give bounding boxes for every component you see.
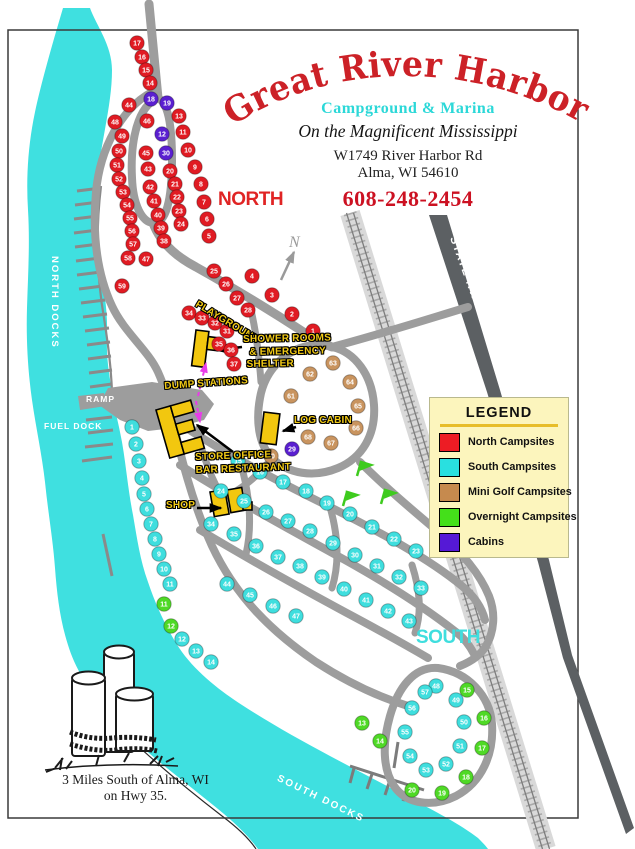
campsite-north: 39: [154, 221, 168, 235]
north-docks-label: NORTH DOCKS: [49, 256, 60, 349]
location-note-line1: 3 Miles South of Alma, WI: [18, 772, 253, 788]
svg-text:65: 65: [354, 404, 362, 411]
svg-text:22: 22: [390, 537, 398, 544]
campsite-south: 10: [157, 562, 171, 576]
svg-text:16: 16: [480, 716, 488, 723]
svg-text:30: 30: [162, 151, 170, 158]
campsite-south: 43: [402, 614, 416, 628]
svg-text:49: 49: [118, 134, 126, 141]
campsite-overnight: 12: [164, 619, 178, 633]
svg-text:19: 19: [323, 501, 331, 508]
campsite-south: 13: [189, 644, 203, 658]
svg-text:44: 44: [125, 103, 133, 110]
svg-text:45: 45: [142, 151, 150, 158]
log-cabin-building: [260, 412, 280, 445]
svg-text:24: 24: [217, 489, 225, 496]
campsite-south: 53: [419, 763, 433, 777]
svg-text:29: 29: [329, 541, 337, 548]
svg-text:6: 6: [145, 507, 149, 514]
svg-text:36: 36: [252, 544, 260, 551]
svg-text:15: 15: [463, 688, 471, 695]
svg-text:26: 26: [222, 282, 230, 289]
svg-text:56: 56: [128, 229, 136, 236]
svg-text:38: 38: [160, 239, 168, 246]
campsite-north: 47: [139, 252, 153, 266]
campsite-south: 54: [403, 749, 417, 763]
svg-text:18: 18: [462, 775, 470, 782]
svg-text:13: 13: [175, 114, 183, 121]
svg-text:21: 21: [368, 525, 376, 532]
svg-text:68: 68: [304, 435, 312, 442]
svg-text:34: 34: [185, 311, 193, 318]
campsite-north: 40: [151, 208, 165, 222]
campsite-north: 2: [285, 307, 299, 321]
campsite-south: 6: [140, 502, 154, 516]
campsite-south: 18: [299, 484, 313, 498]
svg-text:17: 17: [279, 480, 287, 487]
legend-items: North CampsitesSouth CampsitesMini Golf …: [430, 433, 568, 552]
svg-text:28: 28: [306, 529, 314, 536]
page-title: Great River Harbor: [216, 44, 596, 133]
svg-text:18: 18: [147, 97, 155, 104]
svg-text:19: 19: [163, 101, 171, 108]
campsite-south: 14: [204, 655, 218, 669]
campsite-south: 39: [315, 570, 329, 584]
campsite-south: 25: [237, 494, 251, 508]
svg-text:28: 28: [244, 308, 252, 315]
campsite-north: 20: [163, 164, 177, 178]
campsite-south: 56: [405, 701, 419, 715]
svg-text:53: 53: [119, 190, 127, 197]
shower-line-3: SHELTER: [246, 357, 331, 371]
phone-number: 608-248-2454: [248, 186, 568, 212]
campsite-north: 8: [194, 177, 208, 191]
svg-text:45: 45: [246, 593, 254, 600]
campsite-south: 45: [243, 588, 257, 602]
campsite-south: 55: [398, 725, 412, 739]
campsite-overnight: 13: [355, 716, 369, 730]
campsite-north: 45: [139, 146, 153, 160]
svg-text:7: 7: [202, 200, 206, 207]
campsite-south: 5: [137, 487, 151, 501]
compass: N: [281, 234, 301, 280]
svg-text:25: 25: [240, 499, 248, 506]
store-label: STORE OFFICE BAR RESTAURANT: [195, 449, 291, 477]
svg-text:17: 17: [133, 41, 141, 48]
svg-text:7: 7: [149, 522, 153, 529]
svg-text:66: 66: [352, 426, 360, 433]
location-note-line2: on Hwy 35.: [18, 788, 253, 804]
campsite-overnight: 19: [435, 786, 449, 800]
campsite-north: 23: [172, 204, 186, 218]
fuel-dock-label: FUEL DOCK: [44, 421, 102, 431]
campsite-south: 42: [381, 604, 395, 618]
legend-swatch: [439, 458, 460, 477]
svg-text:43: 43: [405, 619, 413, 626]
svg-text:18: 18: [302, 489, 310, 496]
campsite-cabin: 30: [159, 146, 173, 160]
svg-text:47: 47: [292, 614, 300, 621]
legend: LEGEND North CampsitesSouth CampsitesMin…: [429, 397, 569, 558]
svg-text:37: 37: [274, 555, 282, 562]
campsite-south: 11: [163, 577, 177, 591]
svg-text:12: 12: [158, 132, 166, 139]
svg-text:2: 2: [134, 442, 138, 449]
campsite-north: 53: [116, 185, 130, 199]
campsite-north: 21: [168, 177, 182, 191]
legend-item: Overnight Campsites: [439, 508, 568, 527]
svg-text:13: 13: [192, 649, 200, 656]
svg-text:8: 8: [199, 182, 203, 189]
svg-text:34: 34: [207, 522, 215, 529]
svg-text:35: 35: [230, 532, 238, 539]
svg-text:27: 27: [233, 296, 241, 303]
campsite-south: 23: [409, 544, 423, 558]
campsite-north: 11: [176, 125, 190, 139]
campsite-north: 54: [120, 198, 134, 212]
svg-text:23: 23: [412, 549, 420, 556]
campsite-north: 36: [224, 343, 238, 357]
svg-text:5: 5: [207, 234, 211, 241]
campsite-south: 37: [271, 550, 285, 564]
address-line2: Alma, WI 54610: [248, 165, 568, 182]
svg-text:26: 26: [262, 510, 270, 517]
legend-label: South Campsites: [468, 461, 556, 473]
campsite-south: 57: [418, 685, 432, 699]
svg-text:20: 20: [346, 512, 354, 519]
svg-text:48: 48: [432, 684, 440, 691]
subtitle: Campground & Marina: [248, 100, 568, 118]
campsite-north: 15: [139, 63, 153, 77]
legend-swatch: [439, 433, 460, 452]
campsite-north: 56: [125, 224, 139, 238]
svg-text:47: 47: [142, 257, 150, 264]
legend-item: Cabins: [439, 533, 568, 552]
campsite-south: 31: [370, 559, 384, 573]
svg-text:23: 23: [175, 209, 183, 216]
campsite-north: 13: [172, 109, 186, 123]
campsite-south: 27: [281, 514, 295, 528]
svg-text:64: 64: [346, 380, 354, 387]
svg-text:3: 3: [270, 293, 274, 300]
svg-text:17: 17: [478, 746, 486, 753]
campsite-north: 14: [143, 76, 157, 90]
campsite-north: 3: [265, 288, 279, 302]
campsite-north: 58: [121, 251, 135, 265]
campsite-north: 52: [112, 172, 126, 186]
svg-text:36: 36: [227, 348, 235, 355]
svg-text:50: 50: [460, 720, 468, 727]
ramp-label: RAMP: [86, 394, 115, 404]
svg-text:14: 14: [207, 660, 215, 667]
svg-text:19: 19: [438, 791, 446, 798]
campsite-south: 50: [457, 715, 471, 729]
campsite-overnight: 11: [157, 597, 171, 611]
campsite-south: 47: [289, 609, 303, 623]
campsite-south: 35: [227, 527, 241, 541]
campsite-minigolf: 67: [324, 436, 338, 450]
svg-text:41: 41: [150, 199, 158, 206]
campsite-north: 27: [230, 291, 244, 305]
campsite-north: 42: [143, 180, 157, 194]
campsite-south: 12: [175, 632, 189, 646]
legend-title: LEGEND: [430, 398, 568, 421]
svg-text:58: 58: [124, 256, 132, 263]
campsite-north: 59: [115, 279, 129, 293]
svg-text:12: 12: [167, 624, 175, 631]
campsite-south: 1: [125, 420, 139, 434]
campsite-south: 21: [365, 520, 379, 534]
campsite-north: 9: [188, 160, 202, 174]
campsite-north: 26: [219, 277, 233, 291]
log-cabin-arrow: [283, 427, 296, 431]
svg-text:51: 51: [113, 163, 121, 170]
svg-text:43: 43: [144, 167, 152, 174]
svg-text:2: 2: [290, 312, 294, 319]
campsite-north: 50: [112, 144, 126, 158]
tagline: On the Magnificent Mississippi: [238, 121, 578, 142]
campsite-north: 51: [110, 158, 124, 172]
campsite-south: 49: [449, 693, 463, 707]
shower-rooms-label: SHOWER ROOMS & EMERGENCY SHELTER: [243, 332, 332, 371]
campsite-north: 25: [207, 264, 221, 278]
svg-text:53: 53: [422, 768, 430, 775]
legend-label: Mini Golf Campsites: [468, 486, 572, 498]
svg-text:54: 54: [406, 754, 414, 761]
svg-text:25: 25: [210, 269, 218, 276]
campsite-south: 9: [152, 547, 166, 561]
campsite-south: 34: [204, 517, 218, 531]
legend-label: Cabins: [468, 536, 504, 548]
campsite-north: 28: [241, 303, 255, 317]
svg-text:33: 33: [417, 586, 425, 593]
campsite-north: 38: [157, 234, 171, 248]
svg-text:22: 22: [173, 195, 181, 202]
legend-item: Mini Golf Campsites: [439, 483, 568, 502]
legend-swatch: [439, 508, 460, 527]
campsite-south: 41: [359, 593, 373, 607]
shower-line-1: SHOWER ROOMS: [243, 332, 331, 346]
svg-text:55: 55: [401, 730, 409, 737]
campsite-north: 57: [126, 237, 140, 251]
log-cabin-label: LOG CABIN: [294, 415, 352, 428]
campsite-south: 3: [132, 454, 146, 468]
campsite-north: 41: [147, 194, 161, 208]
svg-text:62: 62: [306, 372, 314, 379]
campsite-north: 10: [181, 143, 195, 157]
svg-text:48: 48: [111, 120, 119, 127]
svg-text:1: 1: [130, 425, 134, 432]
svg-text:20: 20: [408, 788, 416, 795]
campsite-north: 37: [227, 357, 241, 371]
legend-rule: [440, 424, 558, 427]
location-note: 3 Miles South of Alma, WI on Hwy 35.: [18, 772, 253, 804]
campsite-south: 26: [259, 505, 273, 519]
svg-text:6: 6: [205, 217, 209, 224]
svg-text:42: 42: [384, 609, 392, 616]
svg-text:46: 46: [269, 604, 277, 611]
campsite-north: 46: [140, 114, 154, 128]
compass-n-label: N: [288, 234, 301, 251]
svg-text:4: 4: [140, 476, 144, 483]
campsite-south: 8: [148, 532, 162, 546]
svg-text:3: 3: [137, 459, 141, 466]
svg-text:10: 10: [184, 148, 192, 155]
campsite-minigolf: 64: [343, 375, 357, 389]
campsite-cabin: 18: [144, 92, 158, 106]
svg-text:20: 20: [166, 169, 174, 176]
campsite-south: 40: [337, 582, 351, 596]
svg-text:52: 52: [442, 762, 450, 769]
legend-label: Overnight Campsites: [468, 511, 577, 523]
campsite-north: 6: [200, 212, 214, 226]
svg-text:38: 38: [296, 564, 304, 571]
svg-text:32: 32: [395, 575, 403, 582]
campsite-south: 20: [343, 507, 357, 521]
campsite-overnight: 18: [459, 770, 473, 784]
campsite-overnight: 16: [477, 711, 491, 725]
svg-text:40: 40: [154, 213, 162, 220]
campsite-minigolf: 68: [301, 430, 315, 444]
svg-text:14: 14: [376, 739, 384, 746]
svg-text:52: 52: [115, 177, 123, 184]
svg-text:5: 5: [142, 492, 146, 499]
campground-map-page: STATE HWY 35 N: [0, 0, 635, 849]
campsite-overnight: 17: [475, 741, 489, 755]
campsite-south: 4: [135, 471, 149, 485]
svg-text:54: 54: [123, 203, 131, 210]
campsite-cabin: 19: [160, 96, 174, 110]
campsite-cabin: 12: [155, 127, 169, 141]
campsite-north: 7: [197, 195, 211, 209]
campsite-south: 30: [348, 548, 362, 562]
campsite-north: 44: [122, 98, 136, 112]
legend-swatch: [439, 533, 460, 552]
svg-text:40: 40: [340, 587, 348, 594]
campsite-south: 2: [129, 437, 143, 451]
campsite-north: 5: [202, 229, 216, 243]
svg-text:51: 51: [456, 744, 464, 751]
svg-text:9: 9: [157, 552, 161, 559]
svg-text:61: 61: [287, 394, 295, 401]
svg-text:11: 11: [160, 602, 168, 609]
campsite-north: 49: [115, 129, 129, 143]
svg-text:16: 16: [138, 55, 146, 62]
campsite-south: 22: [387, 532, 401, 546]
campsite-north: 4: [245, 269, 259, 283]
campsite-south: 51: [453, 739, 467, 753]
svg-text:57: 57: [129, 242, 137, 249]
shower-line-2: & EMERGENCY: [249, 345, 331, 359]
campsite-north: 43: [141, 162, 155, 176]
svg-text:35: 35: [215, 342, 223, 349]
campsite-north: 17: [130, 36, 144, 50]
svg-text:11: 11: [179, 130, 187, 137]
legend-item: North Campsites: [439, 433, 568, 452]
campsite-south: 33: [414, 581, 428, 595]
campsite-south: 36: [249, 539, 263, 553]
campsite-south: 17: [276, 475, 290, 489]
legend-item: South Campsites: [439, 458, 568, 477]
address-line1: W1749 River Harbor Rd: [248, 148, 568, 165]
svg-text:11: 11: [166, 582, 174, 589]
svg-text:41: 41: [362, 598, 370, 605]
campsite-north: 24: [174, 217, 188, 231]
campsite-overnight: 15: [460, 683, 474, 697]
campsite-south: 29: [326, 536, 340, 550]
svg-text:9: 9: [193, 165, 197, 172]
campsite-north: 55: [123, 211, 137, 225]
campsite-south: 28: [303, 524, 317, 538]
svg-text:57: 57: [421, 690, 429, 697]
campsite-south: 46: [266, 599, 280, 613]
campsite-south: 19: [320, 496, 334, 510]
svg-text:24: 24: [177, 222, 185, 229]
legend-swatch: [439, 483, 460, 502]
campsite-south: 32: [392, 570, 406, 584]
svg-text:4: 4: [250, 274, 254, 281]
svg-text:59: 59: [118, 284, 126, 291]
svg-text:42: 42: [146, 185, 154, 192]
svg-text:55: 55: [126, 216, 134, 223]
campsite-minigolf: 65: [351, 399, 365, 413]
campsite-south: 38: [293, 559, 307, 573]
campsite-north: 22: [170, 190, 184, 204]
svg-text:12: 12: [178, 637, 186, 644]
svg-text:31: 31: [373, 564, 381, 571]
svg-text:13: 13: [358, 721, 366, 728]
campsite-south: 44: [220, 577, 234, 591]
svg-text:46: 46: [143, 119, 151, 126]
campsite-south: 24: [214, 484, 228, 498]
campsite-south: 7: [144, 517, 158, 531]
svg-text:56: 56: [408, 706, 416, 713]
svg-text:50: 50: [115, 149, 123, 156]
svg-text:30: 30: [351, 553, 359, 560]
svg-text:27: 27: [284, 519, 292, 526]
svg-text:14: 14: [146, 81, 154, 88]
svg-text:15: 15: [142, 68, 150, 75]
svg-text:39: 39: [318, 575, 326, 582]
svg-text:8: 8: [153, 537, 157, 544]
campsite-overnight: 14: [373, 734, 387, 748]
legend-label: North Campsites: [468, 436, 554, 448]
north-section-label: NORTH: [218, 189, 283, 211]
svg-text:67: 67: [327, 441, 335, 448]
svg-text:21: 21: [171, 182, 179, 189]
svg-text:39: 39: [157, 226, 165, 233]
shop-label: SHOP: [166, 500, 195, 513]
svg-text:37: 37: [230, 362, 238, 369]
campsite-north: 16: [135, 50, 149, 64]
campsite-minigolf: 61: [284, 389, 298, 403]
south-section-label: SOUTH: [416, 627, 480, 649]
campsite-south: 52: [439, 757, 453, 771]
campsite-overnight: 20: [405, 783, 419, 797]
campsite-north: 48: [108, 115, 122, 129]
svg-text:44: 44: [223, 582, 231, 589]
svg-text:49: 49: [452, 698, 460, 705]
svg-text:10: 10: [160, 567, 168, 574]
